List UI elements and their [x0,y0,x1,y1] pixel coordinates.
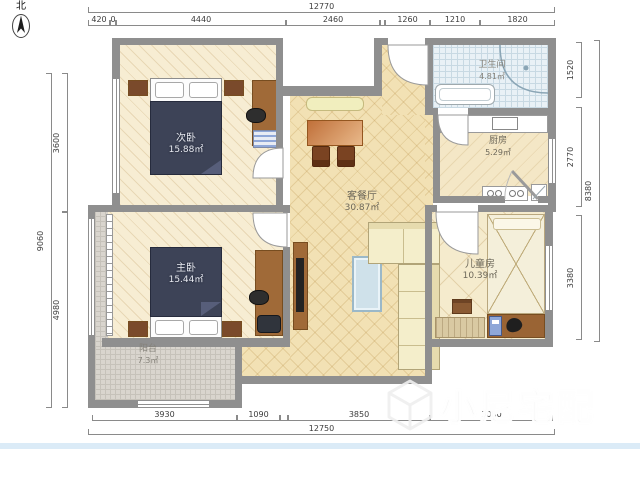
blanket-fold [201,160,221,174]
room-area: 5.29㎡ [466,148,530,158]
sideboard [306,97,364,111]
wall [440,196,505,203]
dim-segment: 12750 [88,429,555,435]
dim-value: 2770 [567,137,577,177]
wall [425,108,438,115]
dim-segment: 9060 [46,73,52,408]
pillow [189,82,218,98]
dim-segment: 1520 [576,42,582,98]
computer [489,316,502,336]
dim-value: 9060 [37,221,47,261]
room-label-kitchen: 厨房 5.29㎡ [466,136,530,158]
dim-value: 3080 [481,411,501,419]
nightstand [222,321,242,337]
living-nook-floor [242,346,290,376]
dim-segment: 2460 [286,20,380,26]
dining-table [307,120,363,146]
dim-value: 3600 [53,123,63,163]
wall [88,205,290,212]
armchair [257,315,281,333]
dim-value: 3850 [349,411,369,419]
wall [276,38,283,148]
wall [468,108,556,115]
low-cabinet [435,317,485,338]
dim-segment: 3080 [430,415,553,421]
stool [452,299,472,314]
dim-segment: 1820 [480,20,555,26]
dim-segment: 3380 [576,215,582,340]
dim-segment: 1210 [430,20,480,26]
room-area: 30.87㎡ [330,203,394,215]
wall [276,86,382,96]
dim-value: 0 [110,16,115,24]
pillow [155,82,184,98]
dim-segment [280,415,288,421]
window [88,218,95,336]
window [137,400,210,408]
bathtub [435,84,495,105]
dim-top-total: 12770 [88,7,555,13]
room-label-living-dining: 客餐厅 30.87㎡ [330,190,394,215]
dim-right-total: 8380 [594,40,600,342]
desk-chair [249,290,269,305]
dim-left-segments: 3600 4980 [62,73,68,408]
dining-chair [337,146,355,167]
wall [235,376,432,384]
dim-left-total: 9060 [46,73,52,408]
pillow [189,320,218,335]
dim-segment: 8380 [594,40,600,342]
wall [425,339,553,347]
wall [283,205,290,213]
room-name: 卫生间 [460,60,524,72]
dim-segment: 4440 [116,20,286,26]
burner-icon [509,190,516,197]
room-label-master-bedroom: 主卧 15.44㎡ [154,262,218,287]
dim-bottom-total: 12750 [88,429,555,435]
dim-gap [576,98,582,107]
room-name: 主卧 [154,262,218,275]
window [112,78,120,194]
room-area: 15.44㎡ [154,275,218,287]
room-name: 厨房 [466,136,530,148]
north-label: 北 [8,1,34,12]
nightstand [128,321,148,337]
bottom-highlight-bar [0,443,640,449]
nightstand [224,80,244,96]
balcony-slider-door [106,214,113,336]
room-area: 10.39㎡ [448,271,512,283]
compass-icon [9,12,33,40]
room-name: 客餐厅 [330,190,394,203]
room-area: 15.88㎡ [154,145,218,157]
dim-gap [576,207,582,215]
wall [283,247,290,346]
dim-segment: 3850 [288,415,430,421]
hall-floor [425,115,433,205]
dim-value: 1090 [248,411,268,419]
dim-segment: 3930 [92,415,237,421]
dim-right-segments: 1520 2770 3380 [576,42,582,340]
burner-icon [517,190,524,197]
watermark-text: 小尼宅配 [440,379,596,431]
wall [538,196,548,203]
dim-segment: 1090 [237,415,280,421]
window [545,245,553,311]
window [548,138,556,184]
dim-value: 4440 [191,16,211,24]
wall [112,38,283,45]
watermark-cube-icon [384,378,436,432]
wall [374,38,388,45]
dim-bottom-segments: 3930 1090 3850 3080 [92,415,553,421]
pillow [155,320,184,335]
room-name: 儿童房 [448,258,512,271]
wall [478,205,548,212]
kitchen-sink [492,117,518,130]
dim-value: 12770 [309,3,334,11]
dim-value: 2460 [323,16,343,24]
nightstand [128,80,148,96]
pillow [493,218,541,230]
dim-value: 3930 [154,411,174,419]
dim-value: 4980 [53,290,63,330]
dim-value: 1520 [567,50,577,90]
dim-value: 1820 [507,16,527,24]
room-label-secondary-bedroom: 次卧 15.88㎡ [154,132,218,157]
wall [548,38,556,212]
wall [428,38,556,45]
dining-chair [312,146,330,167]
dim-segment: 420 [88,20,110,26]
wall [425,347,432,384]
dim-value: 1210 [445,16,465,24]
dim-segment: 2770 [576,107,582,207]
room-label-kids-room: 儿童房 10.39㎡ [448,258,512,283]
entry-floor [382,45,425,115]
bed [150,78,222,175]
wall [425,38,433,115]
wall [425,205,432,347]
dim-segment: 4980 [62,212,68,408]
wall [433,115,440,203]
dim-segment: 3600 [62,73,68,212]
rug [352,256,382,312]
floorplan-canvas: 北 [0,0,640,480]
desk-chair [246,108,266,123]
room-label-bathroom: 卫生间 4.81㎡ [460,60,524,82]
dim-value: 420 [91,16,106,24]
compass: 北 [8,1,34,44]
room-name: 阳台 [116,344,180,356]
wall [425,205,437,212]
room-area: 7.3㎡ [116,356,180,366]
watermark: 小尼宅配 [384,378,596,432]
dim-value: 3380 [567,258,577,298]
dim-value: 1260 [397,16,417,24]
dim-segment: 1260 [385,20,430,26]
dim-value: 8380 [585,171,595,211]
dim-value: 12750 [309,425,334,433]
bed [150,247,222,338]
room-label-balcony: 阳台 7.3㎡ [116,344,180,366]
sofa [398,264,440,370]
room-area: 4.81㎡ [460,72,524,82]
blanket-fold [201,302,221,316]
room-name: 次卧 [154,132,218,145]
dim-segment: 12770 [88,7,555,13]
tv [296,258,304,312]
dim-top-segments: 420 0 4440 2460 1260 1210 1820 [88,20,555,26]
wall [374,38,382,96]
